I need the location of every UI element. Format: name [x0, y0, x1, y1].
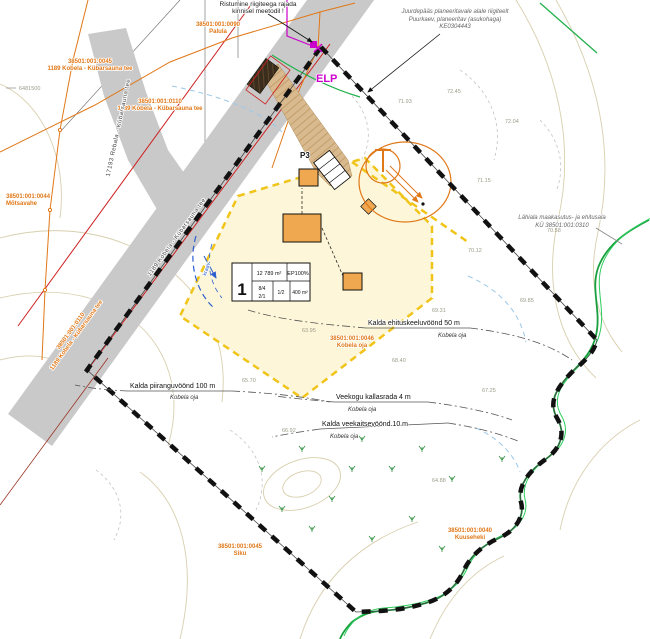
outbuilding-2	[343, 273, 362, 290]
constraint-label: Veekogu kallasrada 4 m	[336, 394, 411, 401]
cadastral-code: 38501:001:0045	[68, 59, 113, 65]
cadastral-name: Mõtsavahe	[6, 201, 38, 207]
coordinate-label: 6481500	[19, 86, 40, 92]
plot-area-value: 12 789 m²	[257, 271, 282, 277]
constraint-sublabel: Kobela oja	[348, 407, 377, 413]
constraint-label: Kalda ehituskeeluvöönd 50 m	[368, 320, 460, 327]
spot-height: 69.85	[520, 298, 534, 304]
note-line: Juurdepääs planeeritavale alale riigitee…	[400, 9, 508, 15]
cadastral-name: 1189 Kobela - Kübarsauna tee	[47, 66, 133, 72]
spot-height: 71.15	[477, 178, 491, 184]
branch-road-surface	[88, 28, 196, 218]
spot-height: 72.04	[505, 119, 519, 125]
spot-height: 64.88	[432, 478, 446, 484]
cadastral-code: 38501:001:0090	[196, 22, 241, 28]
spot-height: 68.40	[392, 358, 406, 364]
constraint-label: Kalda piiranguvöönd 100 m	[130, 383, 215, 390]
cadastral-name: Kobela oja	[337, 343, 368, 349]
spot-height: 65.70	[242, 378, 256, 384]
plot-use-value: EP100%	[287, 271, 309, 277]
spot-height: 70.58	[547, 228, 561, 234]
spot-height: 67.25	[482, 388, 496, 394]
cadastral-code: 38501:001:0046	[330, 336, 375, 342]
cadastral-name: Kuuseheki	[455, 535, 486, 541]
detail-plan-map: 6481500	[0, 0, 650, 639]
cadastral-code: 38501:001:0045	[218, 544, 263, 550]
constraint-sublabel: Kobela oja	[330, 434, 359, 440]
outbuilding-1	[299, 169, 318, 186]
spot-height: 63.95	[302, 328, 316, 334]
green-line-ne	[540, 3, 597, 53]
spot-height: 70.12	[468, 248, 482, 254]
constraint-sublabel: Kobela oja	[438, 333, 467, 339]
table-cell: 8/4	[259, 286, 266, 292]
note-line: Ristumine riigiteega rajada	[220, 1, 297, 8]
table-cell: 1/2	[278, 290, 285, 296]
cadastral-code: 38501:001:0044	[6, 194, 51, 200]
cadastral-code: 38501:001:0110	[138, 99, 182, 105]
note-line: Puurkaev, planeeritav (asukohaga)	[409, 17, 502, 23]
cadastral-name: Siku	[234, 551, 247, 557]
note-line: kinnisel meetodil !	[232, 8, 284, 15]
table-cell: 400 m²	[292, 290, 308, 296]
cadastral-name: Palula	[209, 29, 227, 35]
map-canvas: 6481500	[0, 0, 650, 639]
note-line: KE0304443	[439, 24, 471, 30]
spot-height: 72.45	[447, 89, 461, 95]
cadastral-code: 38501:001:0040	[448, 528, 493, 534]
building-rights-table: 1 12 789 m² EP100% 8/4 2/1 1/2 400 m²	[232, 263, 310, 301]
constraint-sublabel: Kobela oja	[170, 395, 199, 401]
note-line: KÜ 38501:001:0310	[535, 222, 589, 229]
coordinate-tick: 6481500	[6, 86, 40, 92]
parking-label: P3	[300, 151, 310, 160]
constraint-label: Kalda veekaitsevöönd 10 m	[322, 421, 408, 428]
planned-dwelling	[283, 214, 321, 242]
spot-height: 71.93	[398, 99, 412, 105]
elp-label: ELP	[316, 73, 337, 85]
spot-height: 69.31	[432, 308, 446, 314]
spot-height: 66.92	[282, 428, 296, 434]
plot-number: 1	[237, 280, 246, 299]
table-cell: 2/1	[259, 294, 266, 300]
note-line: Lähiala maakasutus- ja ehitusala	[518, 215, 606, 221]
cadastral-name: 1189 Kobela - Kübarsauna tee	[117, 106, 203, 112]
